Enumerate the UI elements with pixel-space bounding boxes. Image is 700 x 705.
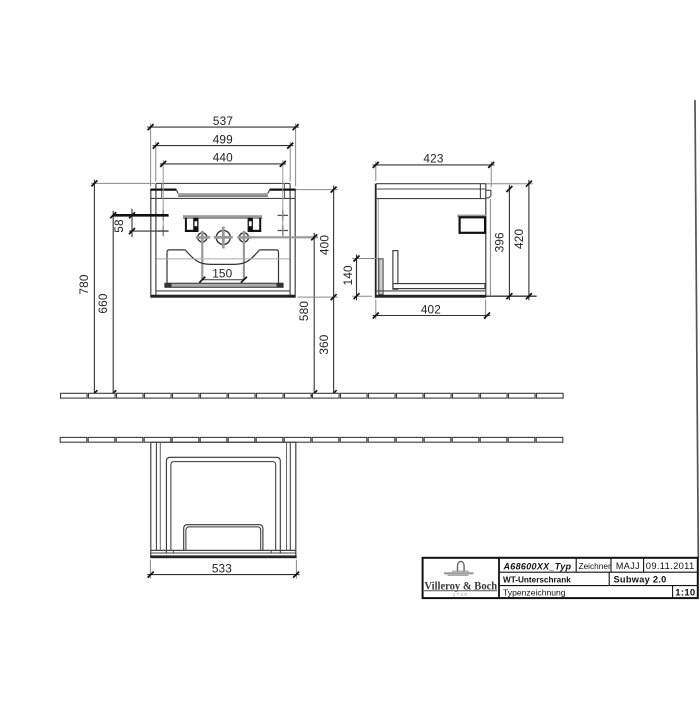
svg-text:499: 499 <box>213 132 233 146</box>
svg-text:58: 58 <box>112 219 126 233</box>
svg-text:09.11.2011: 09.11.2011 <box>646 560 695 571</box>
svg-text:1:10: 1:10 <box>675 588 695 599</box>
svg-text:420: 420 <box>512 229 526 249</box>
svg-text:360: 360 <box>317 334 331 354</box>
svg-text:780: 780 <box>77 274 91 294</box>
svg-text:Typenzeichnung: Typenzeichnung <box>503 588 566 598</box>
svg-text:537: 537 <box>213 114 233 128</box>
svg-text:660: 660 <box>96 293 110 313</box>
svg-text:MAJJ: MAJJ <box>616 561 640 571</box>
svg-text:440: 440 <box>213 151 233 165</box>
svg-text:533: 533 <box>212 561 232 575</box>
svg-text:402: 402 <box>421 302 441 316</box>
svg-text:Subway 2.0: Subway 2.0 <box>614 575 667 585</box>
svg-text:WT-Unterschrank: WT-Unterschrank <box>503 576 571 585</box>
svg-text:Zeichner: Zeichner <box>579 561 612 571</box>
svg-text:150: 150 <box>212 266 232 280</box>
svg-text:1748: 1748 <box>453 592 468 597</box>
svg-text:423: 423 <box>423 152 443 166</box>
svg-text:580: 580 <box>297 301 311 321</box>
svg-text:A68600XX_Typ: A68600XX_Typ <box>503 561 572 571</box>
svg-text:140: 140 <box>341 265 355 285</box>
svg-text:396: 396 <box>492 232 506 252</box>
svg-text:400: 400 <box>318 235 332 255</box>
